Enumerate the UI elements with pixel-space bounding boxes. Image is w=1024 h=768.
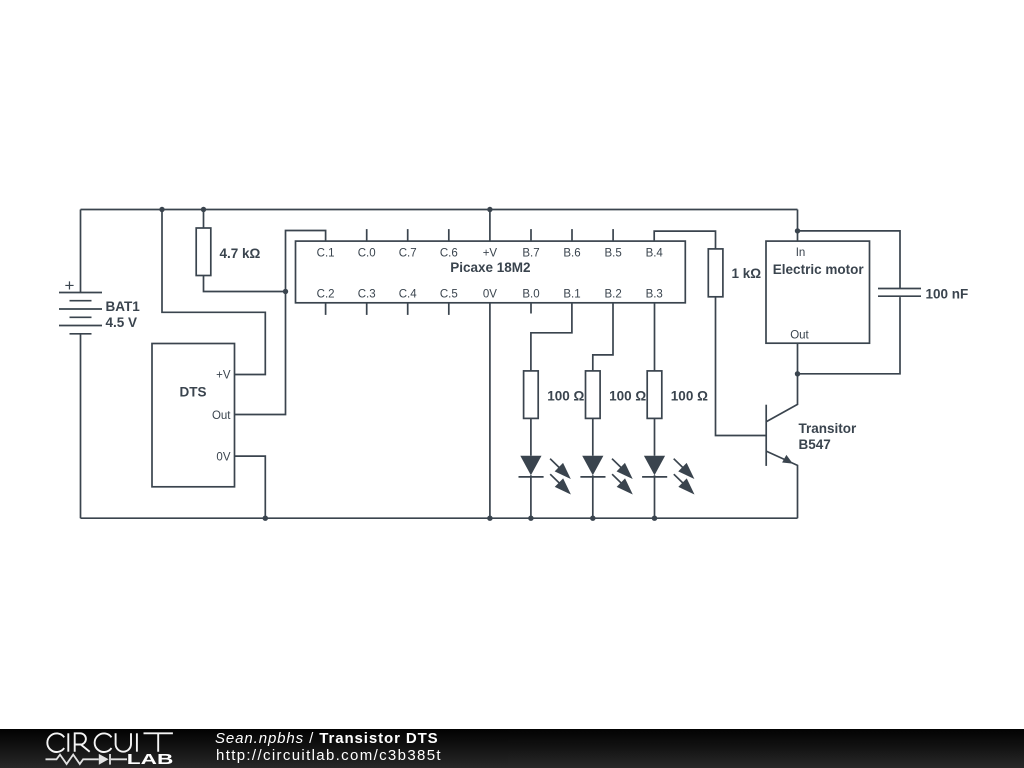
- svg-text:100 Ω: 100 Ω: [671, 389, 708, 404]
- svg-text:B.4: B.4: [646, 248, 664, 260]
- svg-text:B.1: B.1: [563, 289, 580, 301]
- svg-text:Out: Out: [790, 330, 809, 342]
- svg-text:B.2: B.2: [604, 289, 621, 301]
- svg-text:B.6: B.6: [563, 248, 580, 260]
- svg-text:C.5: C.5: [440, 289, 458, 301]
- svg-text:4.7 kΩ: 4.7 kΩ: [220, 246, 261, 261]
- svg-text:LAB: LAB: [127, 751, 174, 768]
- svg-text:B.3: B.3: [646, 289, 663, 301]
- svg-text:C.4: C.4: [399, 289, 418, 301]
- svg-text:B.7: B.7: [522, 248, 539, 260]
- svg-text:Electric motor: Electric motor: [773, 262, 865, 277]
- svg-text:BAT1: BAT1: [106, 299, 141, 314]
- svg-text:+: +: [65, 276, 75, 295]
- svg-text:DTS: DTS: [180, 385, 207, 400]
- svg-text:0V: 0V: [483, 289, 497, 301]
- svg-text:Transitor: Transitor: [799, 421, 858, 436]
- svg-text:+V: +V: [216, 370, 231, 382]
- svg-text:C.6: C.6: [440, 248, 458, 260]
- svg-text:C.3: C.3: [358, 289, 376, 301]
- svg-text:0V: 0V: [216, 452, 230, 464]
- svg-text:C.1: C.1: [317, 248, 335, 260]
- svg-text:B.0: B.0: [522, 289, 539, 301]
- svg-text:C.7: C.7: [399, 248, 417, 260]
- svg-text:100 Ω: 100 Ω: [609, 389, 646, 404]
- svg-text:100 nF: 100 nF: [926, 287, 969, 302]
- svg-text:1 kΩ: 1 kΩ: [732, 266, 762, 281]
- svg-text:In: In: [796, 247, 806, 259]
- svg-text:C.0: C.0: [358, 248, 376, 260]
- svg-text:B547: B547: [799, 437, 831, 452]
- svg-text:+V: +V: [483, 248, 498, 260]
- svg-text:100 Ω: 100 Ω: [547, 389, 584, 404]
- svg-text:4.5 V: 4.5 V: [106, 315, 138, 330]
- svg-text:B.5: B.5: [604, 248, 621, 260]
- svg-text:Picaxe 18M2: Picaxe 18M2: [450, 260, 530, 275]
- svg-text:Out: Out: [212, 410, 231, 422]
- svg-text:C.2: C.2: [317, 289, 335, 301]
